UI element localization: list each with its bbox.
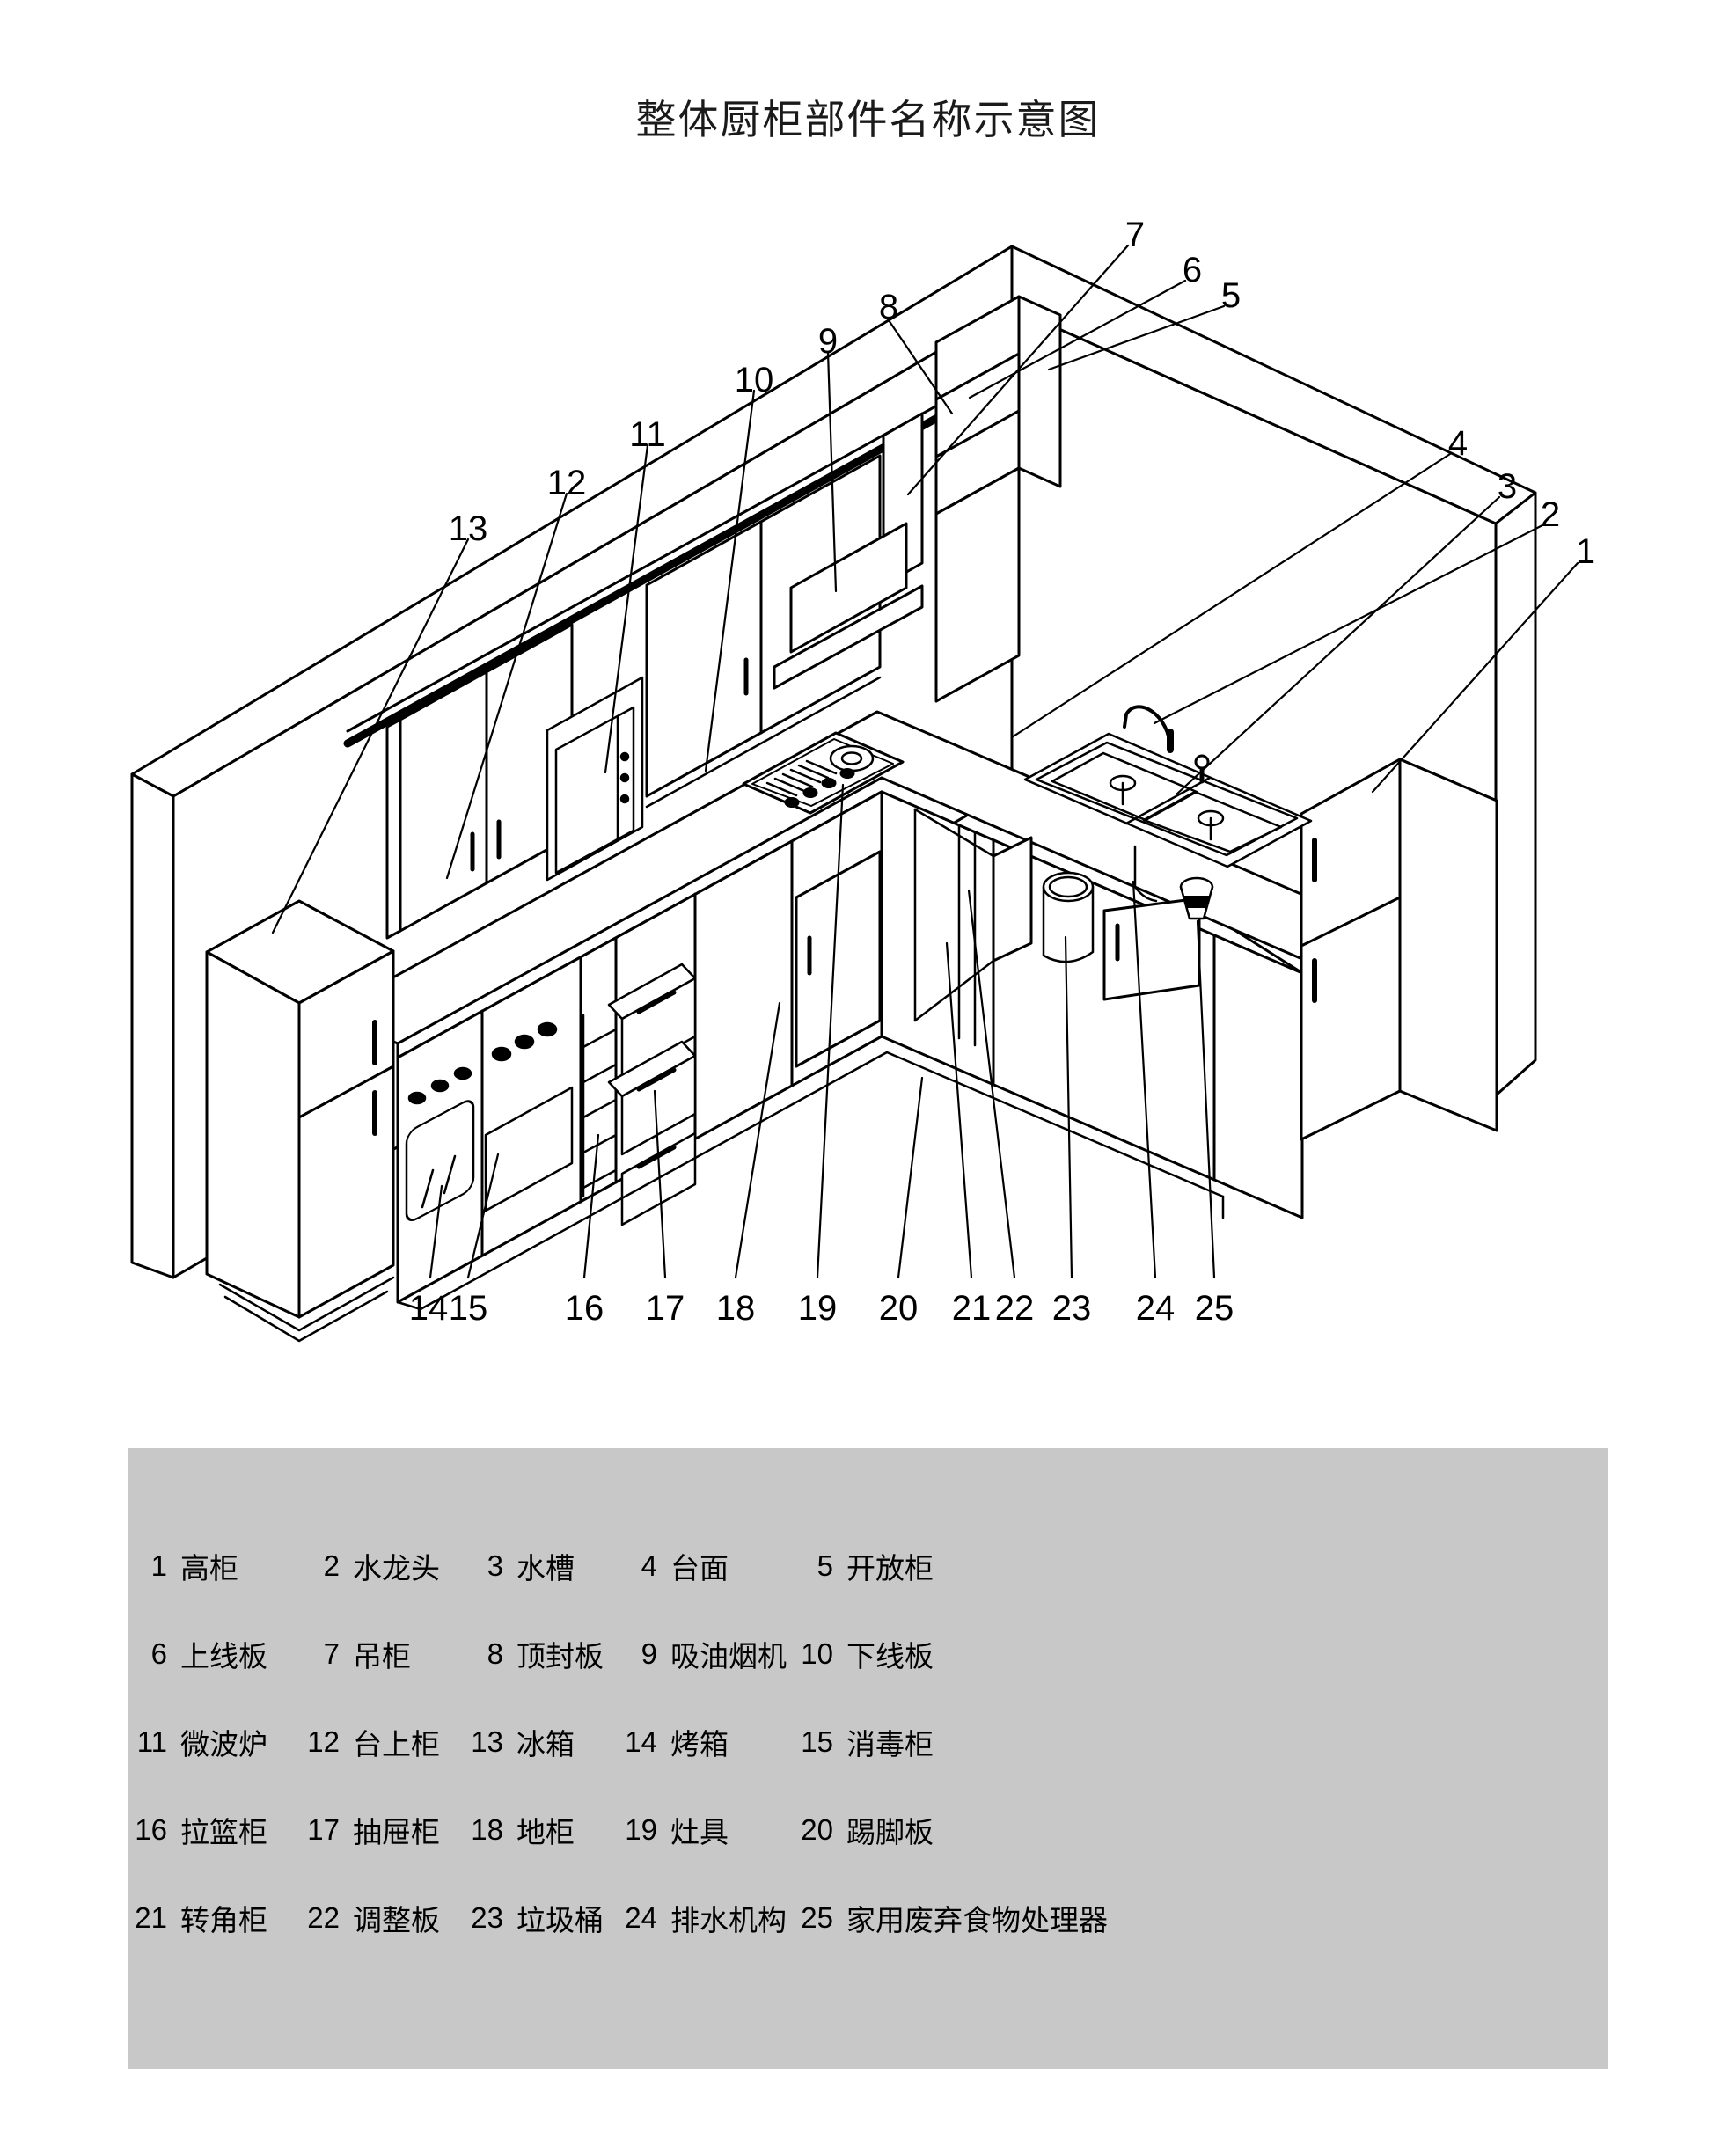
legend-num: 9 — [619, 1637, 657, 1671]
callout-20: 20 — [879, 1289, 919, 1328]
legend-item-17: 17抽屉柜 — [301, 1786, 465, 1874]
dc-knob-1 — [493, 1048, 510, 1060]
kitchen-diagram: 1 2 3 4 5 6 7 8 9 10 11 12 13 14 15 16 1… — [0, 0, 1736, 1425]
legend-item-2: 2水龙头 — [301, 1522, 465, 1610]
tall-cabinet — [1301, 759, 1497, 1139]
legend-item-10: 10下线板 — [795, 1610, 1608, 1698]
legend-label: 拉篮柜 — [180, 1809, 267, 1851]
legend-item-7: 7吊柜 — [301, 1610, 465, 1698]
dc-knob-3 — [538, 1023, 556, 1036]
legend-item-9: 9吸油烟机 — [619, 1610, 795, 1698]
legend-num: 10 — [795, 1637, 833, 1671]
callout-23: 23 — [1052, 1289, 1092, 1328]
legend-item-19: 19灶具 — [619, 1786, 795, 1874]
legend-item-16: 16拉篮柜 — [128, 1786, 301, 1874]
legend-item-25: 25家用废弃食物处理器 — [795, 1874, 1608, 1962]
legend-item-18: 18地柜 — [465, 1786, 619, 1874]
callout-14: 14 — [409, 1289, 449, 1328]
callout-11: 11 — [629, 415, 666, 454]
legend-num: 16 — [128, 1813, 167, 1847]
callout-15: 15 — [449, 1289, 488, 1328]
legend-item-3: 3水槽 — [465, 1522, 619, 1610]
legend-item-22: 22调整板 — [301, 1874, 465, 1962]
sink-door-left — [993, 838, 1031, 961]
legend-label: 垃圾桶 — [516, 1897, 604, 1939]
legend-label: 微波炉 — [180, 1721, 267, 1763]
legend-num: 3 — [465, 1549, 503, 1583]
tall-side — [1400, 759, 1497, 1131]
knob-3 — [823, 780, 835, 787]
left-wall-end-face — [132, 774, 173, 1278]
legend-label: 台面 — [670, 1545, 729, 1587]
callout-10: 10 — [735, 361, 774, 399]
legend-num: 8 — [465, 1637, 503, 1671]
legend-item-13: 13冰箱 — [465, 1698, 619, 1786]
legend-label: 家用废弃食物处理器 — [846, 1897, 1108, 1939]
legend-num: 1 — [128, 1549, 167, 1583]
legend-num: 21 — [128, 1901, 167, 1935]
legend-num: 12 — [301, 1725, 340, 1759]
legend-item-12: 12台上柜 — [301, 1698, 465, 1786]
legend-label: 抽屉柜 — [353, 1809, 440, 1851]
legend-num: 22 — [301, 1901, 340, 1935]
legend-label: 上线板 — [180, 1633, 267, 1675]
legend-item-21: 21转角柜 — [128, 1874, 301, 1962]
callout-8: 8 — [879, 288, 898, 326]
legend-num: 5 — [795, 1549, 833, 1583]
legend-item-4: 4台面 — [619, 1522, 795, 1610]
legend-label: 顶封板 — [516, 1633, 604, 1675]
legend-item-14: 14烤箱 — [619, 1698, 795, 1786]
legend-label: 吸油烟机 — [670, 1633, 787, 1675]
legend-grid: 1高柜 2水龙头 3水槽 4台面 5开放柜 6上线板 7吊柜 8顶封板 9吸油烟… — [128, 1448, 1608, 1962]
dc-knob-2 — [516, 1036, 533, 1048]
ctc-side — [387, 720, 400, 938]
mw-btn-3 — [621, 795, 628, 802]
legend-item-11: 11微波炉 — [128, 1698, 301, 1786]
legend-num: 4 — [619, 1549, 657, 1583]
legend-item-5: 5开放柜 — [795, 1522, 1608, 1610]
legend-item-24: 24排水机构 — [619, 1874, 795, 1962]
callout-19: 19 — [798, 1289, 838, 1328]
legend-label: 地柜 — [516, 1809, 575, 1851]
callout-9: 9 — [818, 322, 838, 361]
drawer-stack — [609, 964, 695, 1225]
oven-knob-3 — [455, 1068, 471, 1079]
callout-7: 7 — [1125, 216, 1145, 254]
legend-item-20: 20踢脚板 — [795, 1786, 1608, 1874]
callout-12: 12 — [547, 464, 587, 502]
legend-label: 转角柜 — [180, 1897, 267, 1939]
legend-num: 24 — [619, 1901, 657, 1935]
leader-20 — [898, 1078, 922, 1278]
knob-4 — [841, 770, 853, 778]
legend-label: 水龙头 — [353, 1545, 440, 1587]
legend-label: 烤箱 — [670, 1721, 729, 1763]
legend-num: 2 — [301, 1549, 340, 1583]
oven-knob-1 — [409, 1093, 425, 1103]
page: { "title": "整体厨柜部件名称示意图", "colors": { "l… — [0, 0, 1736, 2138]
trash-can — [1044, 873, 1093, 962]
callout-3: 3 — [1498, 467, 1517, 506]
legend-num: 6 — [128, 1637, 167, 1671]
legend-num: 18 — [465, 1813, 503, 1847]
callout-6: 6 — [1183, 251, 1202, 289]
right-wall-end-face — [1496, 493, 1535, 1095]
legend-label: 下线板 — [846, 1633, 934, 1675]
legend-label: 踢脚板 — [846, 1809, 934, 1851]
legend-num: 25 — [795, 1901, 833, 1935]
legend-num: 20 — [795, 1813, 833, 1847]
legend-num: 17 — [301, 1813, 340, 1847]
tall-front — [1301, 759, 1400, 1139]
fridge-front — [299, 951, 393, 1317]
legend-item-6: 6上线板 — [128, 1610, 301, 1698]
legend-label: 调整板 — [353, 1897, 440, 1939]
callout-22: 22 — [995, 1289, 1035, 1328]
callout-5: 5 — [1221, 276, 1241, 315]
fridge — [207, 901, 393, 1341]
callout-4: 4 — [1448, 424, 1468, 463]
legend-num: 23 — [465, 1901, 503, 1935]
callout-1: 1 — [1576, 532, 1595, 571]
callout-2: 2 — [1541, 495, 1560, 534]
legend-item-15: 15消毒柜 — [795, 1698, 1608, 1786]
legend-num: 11 — [128, 1725, 167, 1759]
legend-label: 消毒柜 — [846, 1721, 934, 1763]
legend-num: 13 — [465, 1725, 503, 1759]
legend-item-1: 1高柜 — [128, 1522, 301, 1610]
legend-label: 水槽 — [516, 1545, 575, 1587]
callout-25: 25 — [1195, 1289, 1234, 1328]
legend-label: 高柜 — [180, 1545, 238, 1587]
legend-item-23: 23垃圾桶 — [465, 1874, 619, 1962]
disposer-band — [1183, 896, 1210, 908]
callout-13: 13 — [449, 509, 488, 548]
legend-num: 15 — [795, 1725, 833, 1759]
legend-label: 开放柜 — [846, 1545, 934, 1587]
legend-num: 7 — [301, 1637, 340, 1671]
legend-panel: 1高柜 2水龙头 3水槽 4台面 5开放柜 6上线板 7吊柜 8顶封板 9吸油烟… — [128, 1448, 1608, 2069]
mw-btn-1 — [621, 753, 628, 760]
knob-1 — [786, 799, 798, 807]
mw-btn-2 — [621, 774, 628, 781]
knob-2 — [804, 789, 817, 797]
legend-item-8: 8顶封板 — [465, 1610, 619, 1698]
callout-21: 21 — [952, 1289, 992, 1328]
legend-label: 吊柜 — [353, 1633, 411, 1675]
legend-num: 14 — [619, 1725, 657, 1759]
legend-label: 冰箱 — [516, 1721, 575, 1763]
burner-outer — [831, 746, 873, 771]
legend-label: 灶具 — [670, 1809, 729, 1851]
legend-num: 19 — [619, 1813, 657, 1847]
fridge-side — [207, 952, 299, 1317]
legend-label: 台上柜 — [353, 1721, 440, 1763]
oven-knob-2 — [432, 1080, 448, 1091]
callout-24: 24 — [1136, 1289, 1176, 1328]
round-burner — [831, 746, 873, 771]
callout-18: 18 — [716, 1289, 756, 1328]
callout-16: 16 — [565, 1289, 604, 1328]
shelf-side — [1019, 297, 1060, 487]
legend-label: 排水机构 — [670, 1897, 787, 1939]
callout-17: 17 — [646, 1289, 685, 1328]
